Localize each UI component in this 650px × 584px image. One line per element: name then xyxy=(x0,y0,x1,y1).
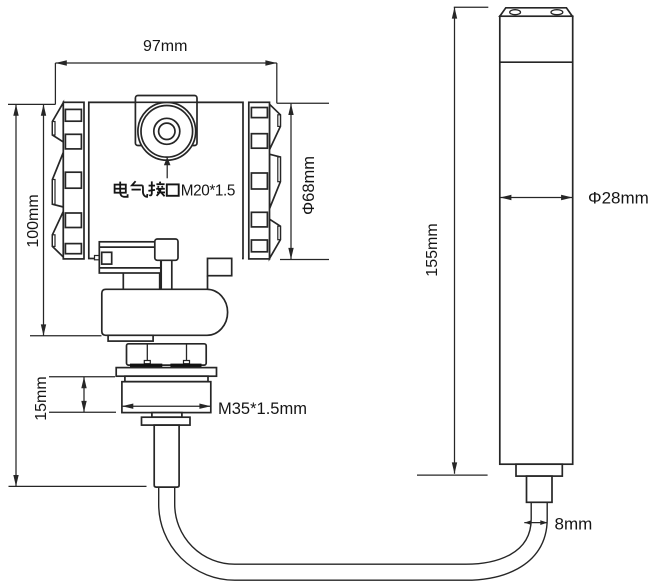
svg-text:100mm: 100mm xyxy=(25,194,42,247)
svg-text:15mm: 15mm xyxy=(33,376,50,420)
svg-text:Φ28mm: Φ28mm xyxy=(588,189,649,208)
svg-text:M35*1.5mm: M35*1.5mm xyxy=(218,400,307,418)
svg-text:8mm: 8mm xyxy=(555,515,593,534)
svg-text:Φ68mm: Φ68mm xyxy=(300,156,318,215)
svg-text:97mm: 97mm xyxy=(143,38,187,55)
svg-text:155mm: 155mm xyxy=(424,223,441,276)
svg-text:M20*1.5: M20*1.5 xyxy=(181,183,235,200)
